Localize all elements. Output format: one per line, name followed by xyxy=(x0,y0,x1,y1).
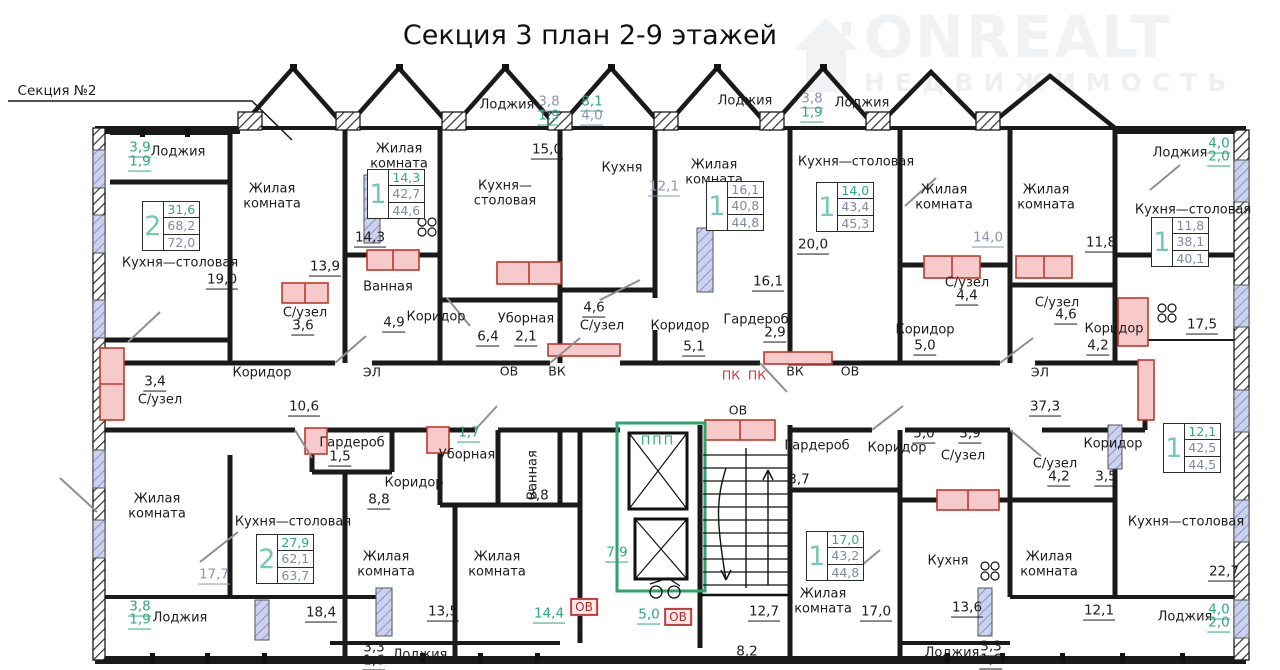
dimension-label: 2,0 xyxy=(1207,150,1230,167)
apartment-area-value: 12,1 xyxy=(1185,424,1220,440)
room-label: Кухня xyxy=(602,160,643,175)
dimension-label: 1,9 xyxy=(128,155,151,172)
dimension-label: 12,1 xyxy=(1083,604,1115,621)
dimension-label: 22,7 xyxy=(1208,565,1240,582)
apartment-rooms-count: 2 xyxy=(257,535,278,583)
dimension-label: 14,3 xyxy=(354,231,386,248)
dimension-label: 4,2 xyxy=(1047,470,1070,487)
dimension-label: 17,5 xyxy=(1186,318,1218,335)
room-label: ОВ xyxy=(664,608,692,626)
dimension-label: 17,0 xyxy=(860,605,892,622)
dimension-label: 1,6 xyxy=(362,654,385,670)
dimension-label: 5,0 xyxy=(913,339,936,356)
apartment-area-value: 63,7 xyxy=(278,568,313,583)
apartment-stat-box: 117,043,244,8 xyxy=(806,531,864,581)
apartment-area-value: 42,7 xyxy=(389,186,424,202)
dimension-label: 14,4 xyxy=(533,607,565,624)
dimension-label: 37,3 xyxy=(1029,400,1061,417)
apartment-area-value: 27,9 xyxy=(278,535,313,551)
room-label: Лоджия xyxy=(153,610,208,625)
room-label: ЭЛ xyxy=(1031,366,1049,381)
dimension-label: 1,9 xyxy=(800,106,823,123)
dimension-label: 3,6 xyxy=(291,319,314,336)
dimension-label: 1,5 xyxy=(328,450,351,467)
dimension-label: 4,2 xyxy=(1086,339,1109,356)
dimension-label: 1,9 xyxy=(128,613,151,630)
dimension-label: 3,7 xyxy=(787,473,810,490)
apartment-area-value: 44,6 xyxy=(389,203,424,218)
apartment-area-value: 16,1 xyxy=(728,182,763,198)
room-label: Лоджия xyxy=(718,93,773,108)
room-label: Коридор xyxy=(232,365,291,380)
room-label: Лоджия xyxy=(480,97,535,112)
dimension-label: 3,5 xyxy=(1094,470,1117,487)
room-label: Гардероб xyxy=(784,438,849,453)
room-label: ВК xyxy=(786,365,803,380)
room-label: Кухня—столовая xyxy=(1128,514,1244,529)
room-label: Кухня—столовая xyxy=(798,154,914,169)
dimension-label: 3,8 xyxy=(526,489,549,506)
room-label: Лоджия xyxy=(151,144,206,159)
apartment-area-value: 44,8 xyxy=(828,565,863,580)
section-2-ref: Секция №2 xyxy=(18,84,97,100)
dimension-label: 2,1 xyxy=(514,330,537,347)
room-label: ОВ xyxy=(500,365,518,380)
room-label: ОВ xyxy=(570,598,598,616)
apartment-rooms-count: 1 xyxy=(807,532,828,580)
dimension-label: 3,4 xyxy=(143,375,166,392)
room-label: Кухня—столовая xyxy=(235,514,351,529)
dimension-label: 5,0 xyxy=(912,427,935,444)
dimension-label: 12,1 xyxy=(648,180,680,197)
room-label: Коридор xyxy=(1084,321,1143,336)
apartment-rooms-count: 1 xyxy=(1164,424,1185,472)
dimension-label: 4,6 xyxy=(582,301,605,318)
room-label: Жилая комната xyxy=(128,492,186,523)
dimension-label: 13,5 xyxy=(427,605,459,622)
dimension-label: 13,9 xyxy=(309,260,341,277)
room-label: Кухня—столовая xyxy=(122,255,238,270)
apartment-stat-box: 114,043,445,3 xyxy=(816,182,874,232)
apartment-area-value: 14,3 xyxy=(389,170,424,186)
apartment-area-value: 45,3 xyxy=(838,216,873,231)
dimension-label: 10,6 xyxy=(288,400,320,417)
dimension-label: 16,1 xyxy=(752,275,784,292)
room-label: Жилая комната xyxy=(243,182,301,213)
apartment-area-value: 44,8 xyxy=(728,215,763,230)
dimension-label: 3,9 xyxy=(958,427,981,444)
room-label: Жилая комната xyxy=(915,183,973,214)
dimension-label: 4,9 xyxy=(382,316,405,333)
dimension-label: 1,7 xyxy=(457,426,480,443)
apartment-area-value: 72,0 xyxy=(164,235,199,250)
page-title: Секция 3 план 2-9 этажей xyxy=(300,20,880,51)
apartment-area-value: 11,8 xyxy=(1173,218,1208,234)
room-label: Коридор xyxy=(406,309,465,324)
apartment-stat-box: 111,838,140,1 xyxy=(1151,217,1209,267)
apartment-rooms-count: 1 xyxy=(1152,218,1173,266)
dimension-label: 6,4 xyxy=(476,330,499,347)
apartment-area-value: 62,1 xyxy=(278,551,313,567)
room-label: С/узел xyxy=(941,448,985,463)
room-label: Лоджия xyxy=(835,95,890,110)
dimension-label: 17,7 xyxy=(198,568,230,585)
room-label: Лоджия xyxy=(1153,145,1208,160)
dimension-label: 5,1 xyxy=(682,340,705,357)
room-label: ЭЛ xyxy=(363,366,381,381)
dimension-label: 5,0 xyxy=(637,608,660,625)
dimension-label: 19,0 xyxy=(206,273,238,290)
dimension-label: 4,0 xyxy=(580,109,603,126)
apartment-stat-box: 227,962,163,7 xyxy=(256,534,314,584)
apartment-rooms-count: 1 xyxy=(368,170,389,218)
room-label: Жилая комната xyxy=(1020,550,1078,581)
room-label: С/узел xyxy=(580,318,624,333)
room-label: Жилая комната xyxy=(357,550,415,581)
room-label: Уборная xyxy=(439,447,495,462)
room-label: Жилая комната xyxy=(468,550,526,581)
dimension-label: 15,0 xyxy=(531,143,563,160)
room-label: Кухня—столовая xyxy=(1135,202,1251,217)
dimension-label: 2,0 xyxy=(1207,616,1230,633)
room-label: Лоджия xyxy=(925,645,980,660)
apartment-stat-box: 116,140,844,8 xyxy=(706,181,764,231)
room-label: ППП xyxy=(641,434,675,449)
dimension-label: 1,6 xyxy=(979,653,1002,670)
room-label: ОВ xyxy=(841,365,859,380)
apartment-area-value: 40,1 xyxy=(1173,251,1208,266)
apartment-area-value: 43,2 xyxy=(828,548,863,564)
room-label: ПК xyxy=(722,369,740,384)
room-label: С/узел xyxy=(138,392,182,407)
floor-plan-page: ONREALT НЕДВИЖИМОСТЬ Секция 3 план 2-9 э… xyxy=(0,0,1280,670)
room-label: Кухня— столовая xyxy=(474,179,536,210)
dimension-label: 8,2 xyxy=(735,645,758,662)
apartment-area-value: 68,2 xyxy=(164,218,199,234)
room-label: Коридор xyxy=(1083,436,1142,451)
dimension-label: 4,4 xyxy=(955,289,978,306)
room-label: Лоджия xyxy=(393,647,448,662)
apartment-rooms-count: 1 xyxy=(817,183,838,231)
apartment-area-value: 17,0 xyxy=(828,532,863,548)
apartment-area-value: 40,8 xyxy=(728,198,763,214)
room-label: Лоджия xyxy=(1158,609,1213,624)
dimension-label: 18,4 xyxy=(305,606,337,623)
apartment-stat-box: 112,142,544,5 xyxy=(1163,423,1221,473)
room-label: Уборная xyxy=(498,311,554,326)
room-label: Коридор xyxy=(384,475,443,490)
apartment-stat-box: 114,342,744,6 xyxy=(367,169,425,219)
apartment-stat-box: 231,668,272,0 xyxy=(142,201,200,251)
apartment-rooms-count: 2 xyxy=(143,202,164,250)
room-label: Ванная xyxy=(363,279,413,294)
room-label: ОВ xyxy=(729,404,747,419)
apartment-rooms-count: 1 xyxy=(707,182,728,230)
dimension-label: 12,7 xyxy=(748,605,780,622)
apartment-area-value: 38,1 xyxy=(1173,234,1208,250)
apartment-area-value: 43,4 xyxy=(838,199,873,215)
dimension-label: 11,8 xyxy=(1085,236,1117,253)
apartment-area-value: 14,0 xyxy=(838,183,873,199)
room-label: ПК xyxy=(748,369,766,384)
dimension-label: 13,6 xyxy=(951,601,983,618)
room-label: Коридор xyxy=(895,322,954,337)
dimension-label: 8,8 xyxy=(367,493,390,510)
room-label: ВК xyxy=(548,365,565,380)
room-label: Кухня xyxy=(928,553,969,568)
apartment-area-value: 31,6 xyxy=(164,202,199,218)
dimension-label: 20,0 xyxy=(797,238,829,255)
room-label: Жилая комната xyxy=(794,587,852,618)
dimension-label: 2,9 xyxy=(763,326,786,343)
dimension-label: 1,9 xyxy=(537,109,560,126)
dimension-label: 4,6 xyxy=(1054,308,1077,325)
apartment-area-value: 44,5 xyxy=(1185,457,1220,472)
apartment-area-value: 42,5 xyxy=(1185,440,1220,456)
room-label: Жилая комната xyxy=(1017,183,1075,214)
room-label: Жилая комната xyxy=(370,142,428,173)
dimension-label: 14,0 xyxy=(972,231,1004,248)
dimension-label: 7,9 xyxy=(605,546,628,563)
room-label: Коридор xyxy=(650,318,709,333)
